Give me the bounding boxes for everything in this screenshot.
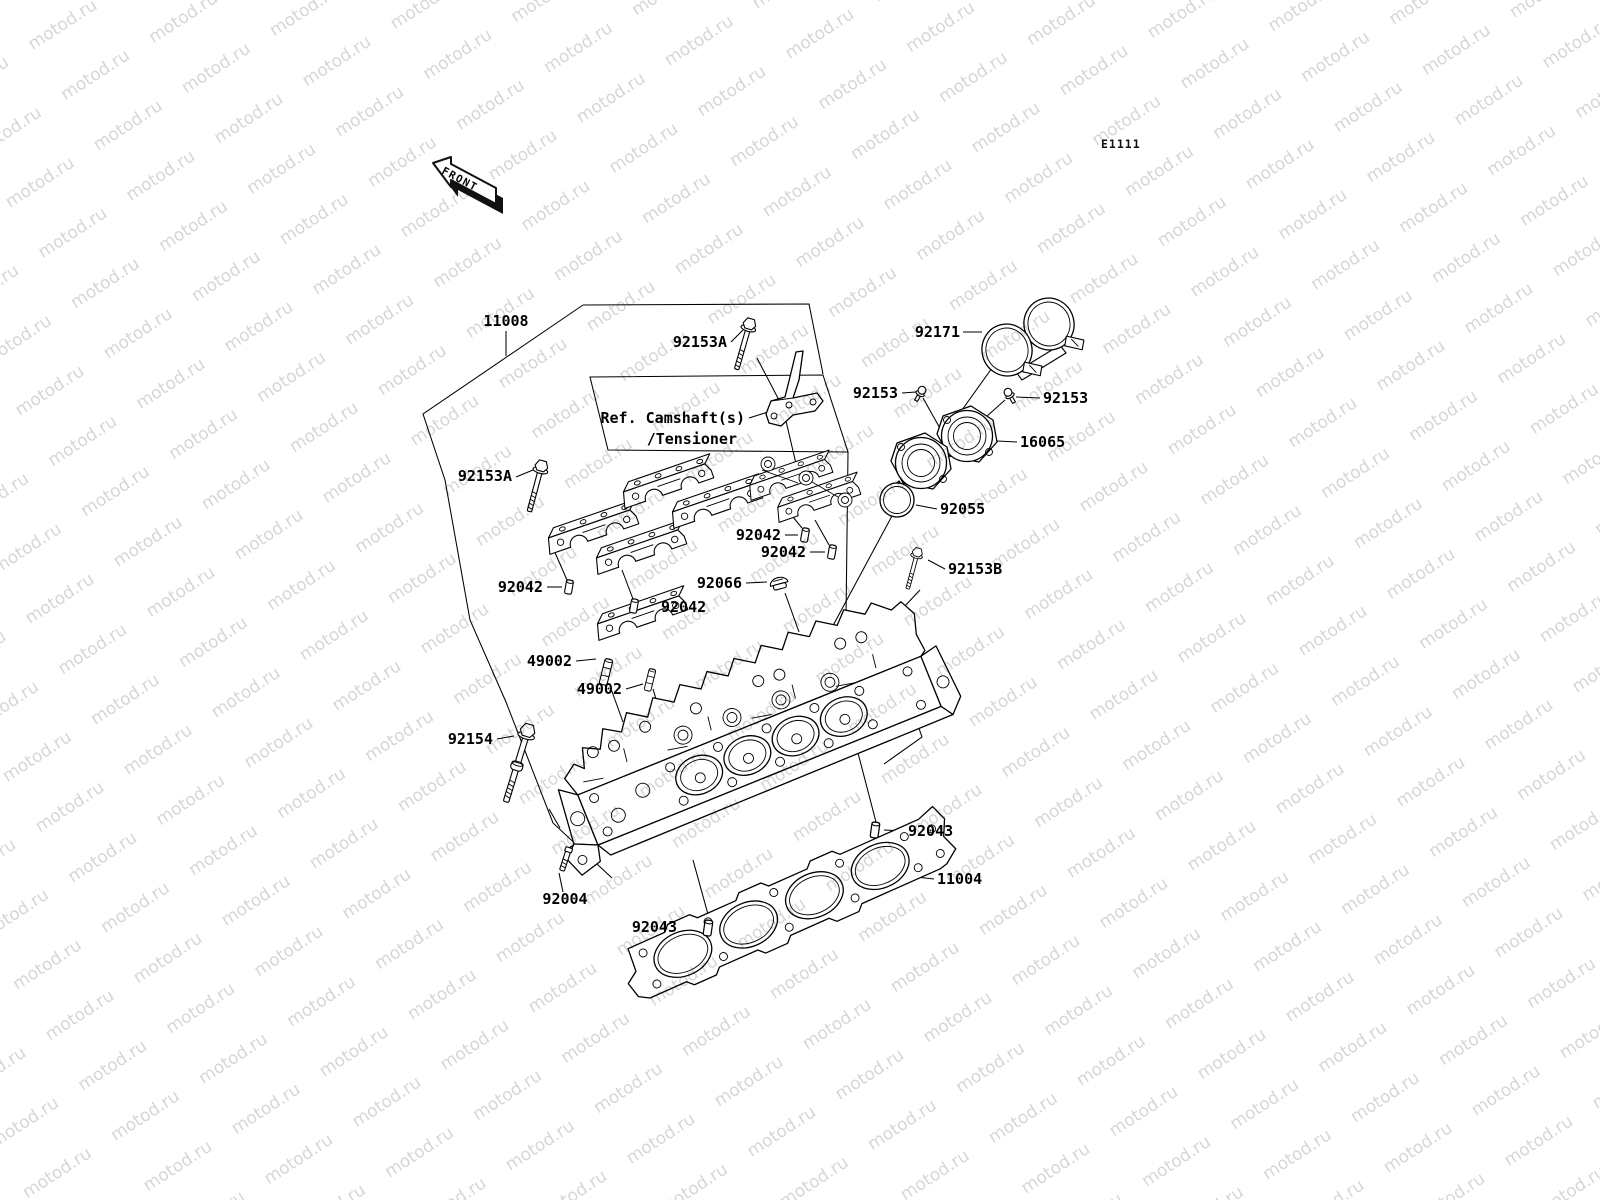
screw-92153-right xyxy=(1002,387,1018,405)
callout-92153-left: 92153 xyxy=(853,384,898,402)
plug-92066 xyxy=(769,575,789,591)
bolt-92153a-top xyxy=(729,317,758,372)
camshaft-tensioner-bracket xyxy=(766,351,823,426)
diagram-canvas: FRONT E1111 11008 92153A Ref. Camshaft(s… xyxy=(0,0,1600,1200)
callout-92042-r2: 92042 xyxy=(761,543,806,561)
callout-92153a-top: 92153A xyxy=(673,333,727,351)
callout-49002-1: 49002 xyxy=(527,652,572,670)
callout-ref-camshaft-line2: /Tensioner xyxy=(647,430,737,448)
bolt-92153b xyxy=(902,547,924,591)
pin-92042-r1 xyxy=(800,527,809,542)
bolt-92153a-left xyxy=(522,459,550,514)
pin-92042-r2 xyxy=(827,544,836,559)
callout-92171: 92171 xyxy=(915,323,960,341)
callout-49002-2: 49002 xyxy=(577,680,622,698)
bolt-92154 xyxy=(498,722,538,804)
parts-diagram-page: FRONT E1111 11008 92153A Ref. Camshaft(s… xyxy=(0,0,1600,1200)
callout-ref-camshaft-line1: Ref. Camshaft(s) xyxy=(601,409,746,427)
callouts: 11008 92153A Ref. Camshaft(s) /Tensioner… xyxy=(448,312,1088,936)
callout-92042-r1: 92042 xyxy=(736,526,781,544)
front-arrow: FRONT xyxy=(433,157,503,214)
callout-92153-right: 92153 xyxy=(1043,389,1088,407)
callout-92055: 92055 xyxy=(940,500,985,518)
screw-92153-left xyxy=(912,385,928,403)
callout-11008: 11008 xyxy=(483,312,528,330)
callout-92154: 92154 xyxy=(448,730,493,748)
page-code: E1111 xyxy=(1101,137,1141,151)
callout-16065: 16065 xyxy=(1020,433,1065,451)
hose-clamps-92171 xyxy=(976,292,1086,389)
pin-92043-right xyxy=(870,822,880,839)
camshaft-bearing-caps xyxy=(542,454,766,641)
callout-92042-left: 92042 xyxy=(498,578,543,596)
camshaft-cap-assembly-right xyxy=(744,450,864,522)
callout-11004: 11004 xyxy=(937,870,982,888)
callout-92153b: 92153B xyxy=(948,560,1002,578)
o-ring-92055 xyxy=(880,483,914,517)
pin-92042-left xyxy=(564,579,573,594)
callout-92066: 92066 xyxy=(697,574,742,592)
callout-92042-bottom: 92042 xyxy=(661,598,706,616)
callout-92153a-left: 92153A xyxy=(458,467,512,485)
callout-92043-right: 92043 xyxy=(908,822,953,840)
stud-49002-2 xyxy=(644,668,656,692)
callout-92004: 92004 xyxy=(542,890,587,908)
callout-92043-bottom: 92043 xyxy=(632,918,677,936)
pin-92043-bottom xyxy=(703,920,713,937)
